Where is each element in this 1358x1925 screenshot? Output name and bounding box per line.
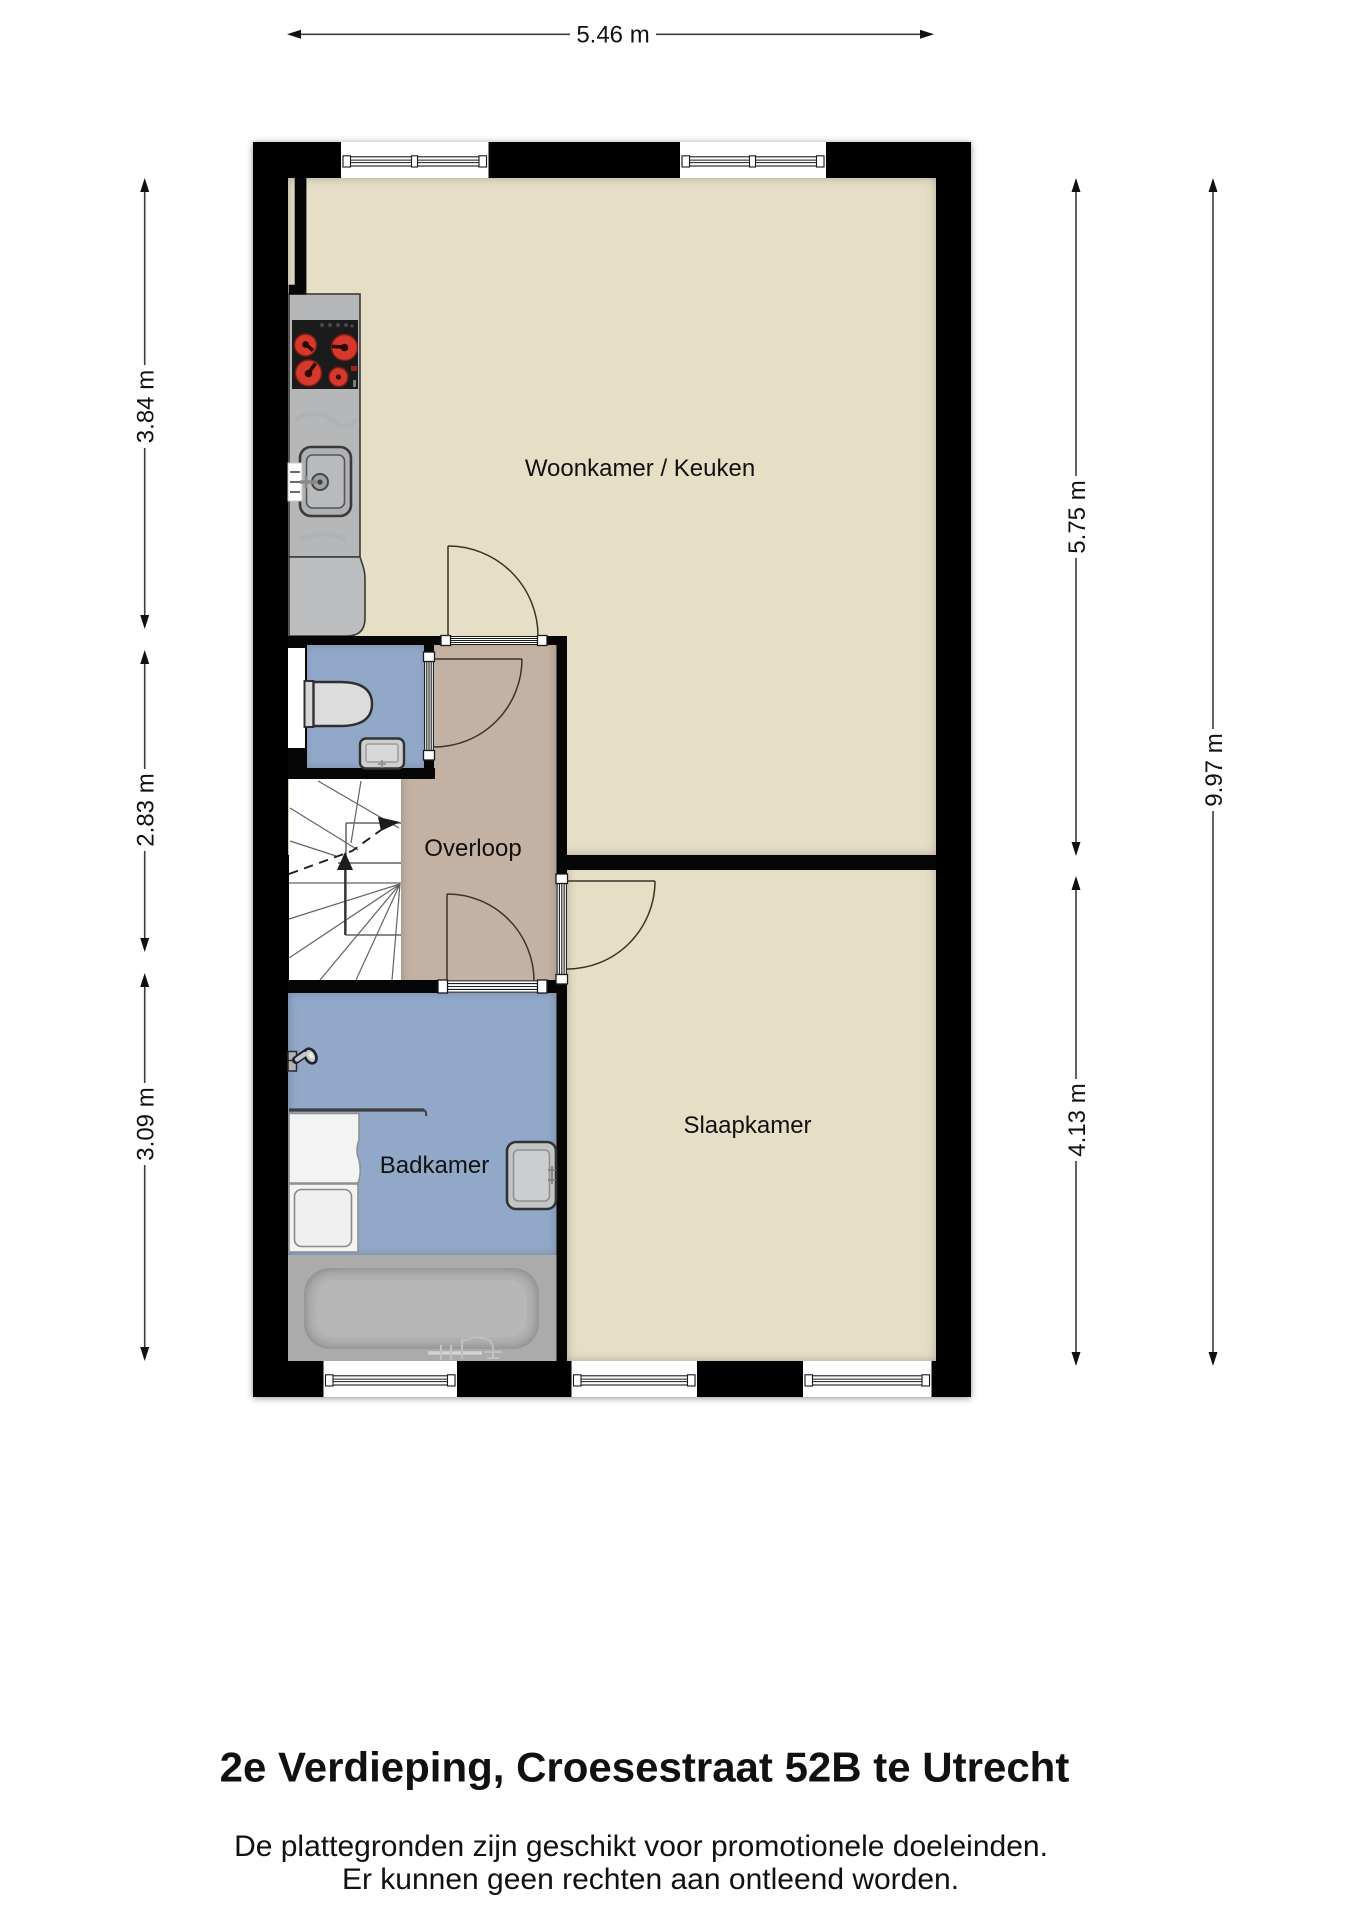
svg-text:Woonkamer / Keuken: Woonkamer / Keuken bbox=[525, 455, 755, 482]
svg-text:Badkamer: Badkamer bbox=[380, 1152, 489, 1179]
svg-text:4.13 m: 4.13 m bbox=[1064, 1083, 1091, 1156]
svg-text:De plattegronden zijn geschikt: De plattegronden zijn geschikt voor prom… bbox=[234, 1830, 1048, 1863]
svg-text:5.46 m: 5.46 m bbox=[576, 22, 649, 49]
svg-text:3.84 m: 3.84 m bbox=[133, 370, 160, 443]
svg-text:9.97 m: 9.97 m bbox=[1201, 733, 1228, 806]
svg-text:3.09 m: 3.09 m bbox=[133, 1087, 160, 1160]
svg-text:5.75 m: 5.75 m bbox=[1064, 480, 1091, 553]
svg-text:Slaapkamer: Slaapkamer bbox=[683, 1112, 811, 1139]
svg-text:2.83 m: 2.83 m bbox=[133, 773, 160, 846]
svg-text:Overloop: Overloop bbox=[424, 835, 521, 862]
svg-text:Er kunnen geen rechten aan ont: Er kunnen geen rechten aan ontleend word… bbox=[342, 1863, 959, 1896]
svg-text:2e Verdieping, Croesestraat 52: 2e Verdieping, Croesestraat 52B te Utrec… bbox=[220, 1744, 1070, 1791]
